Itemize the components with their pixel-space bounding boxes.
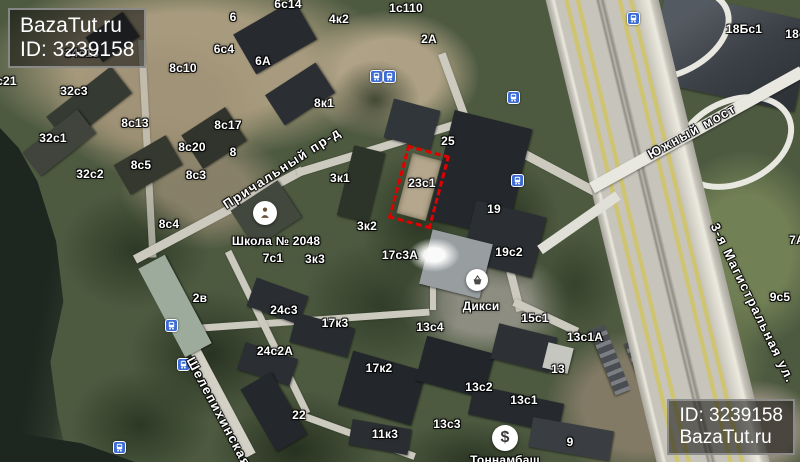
transit-stop-icon [627,12,640,25]
building-label: 13с1 [510,393,538,407]
building-label: 13с2 [465,380,493,394]
building-label: 8с3 [186,168,207,182]
highlighted-building-label: 23с1 [408,176,436,190]
building-label: 6с4 [214,42,235,56]
watermark-bottom-right: ID: 3239158 BazaTut.ru [667,399,795,455]
building-label: 13 [551,362,565,376]
building-label: 32с3 [60,84,88,98]
building-label: 24с3 [270,303,298,317]
building-label: 3к3 [305,252,325,266]
building-label: 8с21 [0,74,17,88]
building-label: 1с110 [389,1,423,15]
building-label: 32с2 [76,167,104,181]
building-label: 13с4 [416,320,444,334]
building-label: 25 [441,134,455,148]
building-label: 18с1 [785,27,800,41]
building-label: 8с13 [121,116,149,130]
transit-stop-icon [383,70,396,83]
building-label: 2А [421,32,437,46]
store-label: Дикси [463,299,500,313]
dollar-glyph: $ [501,429,510,447]
bank-dollar-icon: $ [492,425,518,451]
watermark-site: BazaTut.ru [679,427,783,449]
building-label: 6с14 [274,0,302,11]
school-icon [253,201,277,225]
building-label: 8с10 [169,61,197,75]
satellite-map-canvas[interactable]: $ 6с14 1с110 4к2 2А 18Бс1 18с1 6 6с4 6А … [0,0,800,462]
building-label: 8с20 [178,140,206,154]
watermark-top-left: BazaTut.ru ID: 3239158 [8,8,146,68]
building-label: 19с2 [495,245,523,259]
building-label: 7с1 [263,251,284,265]
school-label: Школа № 2048 [232,234,320,248]
building-label: 11к3 [372,427,398,441]
building-label: 8с5 [131,158,152,172]
building-label: 8к1 [314,96,334,110]
transit-stop-icon [165,319,178,332]
building-label: 7А [789,233,800,247]
building-label: 4к2 [329,12,349,26]
building-label: 22 [292,408,306,422]
watermark-id: ID: 3239158 [20,38,134,62]
building-label: 15с1 [521,311,549,325]
poi-label-partial: Тоннамбаш [470,453,540,462]
store-basket-icon [466,269,488,291]
building-label: 8с17 [214,118,242,132]
building-label: 32с1 [39,131,67,145]
building-label: 9 [567,435,574,449]
building-label: 13с1А [567,330,603,344]
building-label: 6А [255,54,271,68]
transit-stop-icon [370,70,383,83]
building-label: 18Бс1 [726,22,762,36]
watermark-site: BazaTut.ru [20,14,134,38]
building-label: 2в [193,291,207,305]
building-label: 8с4 [159,217,180,231]
building-label: 13с3 [433,417,461,431]
building-label: 24с2А [257,344,293,358]
transit-stop-icon [511,174,524,187]
watermark-id: ID: 3239158 [679,405,783,427]
building-label: 6 [230,10,237,24]
building-label: 3к1 [330,171,350,185]
building-label: 17с3А [382,248,418,262]
transit-stop-icon [507,91,520,104]
transit-stop-icon [113,441,126,454]
building-label: 17к2 [366,361,393,375]
building-label: 3к2 [357,219,377,233]
building-label: 8 [230,145,237,159]
building-label: 19 [487,202,501,216]
building-label: 17к3 [322,316,349,330]
building-label: 9с5 [770,290,791,304]
